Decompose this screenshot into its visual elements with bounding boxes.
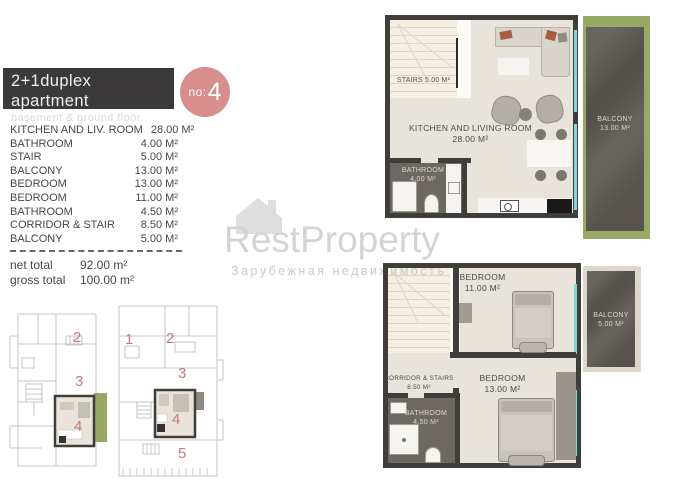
room-value: 5.00 M² [133, 151, 178, 165]
room-value: 13.00 M² [127, 165, 178, 179]
corridor-label: CORRIDOR & STAIRS 8.50 M² [383, 374, 455, 392]
room-row: BALCONY13.00 M² [10, 165, 178, 179]
dining-chair [556, 129, 567, 140]
site-right-unit-1: 1 [125, 332, 133, 347]
net-total-value: 92.00 m² [80, 258, 127, 272]
window-bedroom-small [574, 284, 577, 354]
room-row: CORRIDOR & STAIR8.50 M² [10, 219, 178, 233]
cooktop-icon [547, 199, 572, 213]
corridor-name: CORRIDOR & STAIRS [383, 374, 455, 383]
room-value: 13.00 M² [127, 178, 178, 192]
room-label: CORRIDOR & STAIR [10, 219, 115, 233]
unit-number-badge: no: 4 [180, 67, 230, 117]
net-total-row: net total92.00 m² [10, 258, 178, 272]
ground-stairs: STAIRS 5.00 M² [390, 20, 457, 98]
shower-icon [389, 424, 419, 455]
dining-chair [556, 170, 567, 181]
dining-table [527, 140, 571, 167]
basement-balcony-area: 5.00 M² [587, 320, 635, 329]
bedroom-divider-wall [450, 352, 576, 358]
room-label: BALCONY [10, 233, 63, 247]
window-living-top [574, 30, 577, 112]
room-value: 11.00 M² [127, 192, 178, 206]
net-total-label: net total [10, 258, 80, 272]
site-left-unit-3: 3 [75, 374, 83, 389]
toilet-icon [424, 194, 439, 213]
floorplan-sheet: 2+1duplex apartment basement & ground fl… [0, 0, 679, 480]
dining-chair [535, 170, 546, 181]
room-label: BATHROOM [10, 206, 73, 220]
window-living-bottom [574, 124, 577, 210]
site-plan-right [113, 302, 225, 480]
gross-total-label: gross total [10, 273, 80, 287]
site-right-unit-3: 3 [178, 366, 186, 381]
badge-prefix: no: [188, 85, 206, 99]
wardrobe [556, 372, 576, 460]
room-label: BATHROOM [10, 138, 73, 152]
dining-chair [535, 129, 546, 140]
ground-balcony-label: BALCONY [586, 115, 644, 124]
site-right-unit-4: 4 [172, 412, 180, 427]
ground-bathroom-name: BATHROOM [392, 166, 454, 175]
room-row: STAIR5.00 M² [10, 151, 178, 165]
stair-railing [456, 38, 458, 88]
room-area-list: KITCHEN AND LIV. ROOM28.00 M² BATHROOM4.… [10, 124, 178, 287]
site-right-unit-5: 5 [178, 446, 186, 461]
bedroom-small-name: BEDROOM [425, 272, 540, 283]
room-label: BALCONY [10, 165, 63, 179]
room-row: BALCONY5.00 M² [10, 233, 178, 247]
bed-small [512, 291, 554, 349]
room-row: KITCHEN AND LIV. ROOM28.00 M² [10, 124, 178, 138]
site-plan-left [8, 306, 110, 478]
room-label: BEDROOM [10, 178, 67, 192]
gross-total-value: 100.00 m² [80, 273, 134, 287]
ground-balcony-area: 13.00 M² [586, 124, 644, 133]
page-title: 2+1duplex apartment [11, 71, 174, 111]
site-right-balcony-nub [195, 392, 204, 410]
watermark-house-icon [228, 192, 292, 236]
room-value: 4.00 M² [133, 138, 178, 152]
dresser [459, 303, 472, 323]
bedroom-large-name: BEDROOM [450, 373, 555, 384]
bedroom-large-label: BEDROOM 13.00 M² [450, 373, 555, 395]
sofa-pillow [557, 32, 567, 42]
ground-stairs-label: STAIRS 5.00 M² [390, 77, 457, 84]
room-value: 28.00 M² [143, 124, 194, 138]
room-row: BEDROOM13.00 M² [10, 178, 178, 192]
room-label: BEDROOM [10, 192, 67, 206]
site-left-garden [94, 393, 107, 442]
watermark-brand: RestProperty [224, 221, 440, 259]
basement-bathroom-name: BATHROOM [398, 409, 454, 418]
site-right-unit-2: 2 [166, 331, 174, 346]
basement-bathroom-wall-right [455, 393, 460, 463]
kitchen-living-name: KITCHEN AND LIVING ROOM [398, 123, 543, 134]
room-label: STAIR [10, 151, 42, 165]
bed-large [498, 398, 555, 462]
site-left-unit-2: 2 [73, 330, 81, 345]
ground-balcony: BALCONY 13.00 M² [586, 27, 644, 231]
washbasin-counter [446, 164, 461, 213]
stair-landing [457, 20, 471, 98]
page-subtitle: basement & ground floor [11, 111, 174, 125]
room-row: BATHROOM4.50 M² [10, 206, 178, 220]
bedroom-large-area: 13.00 M² [450, 384, 555, 395]
gross-total-row: gross total100.00 m² [10, 273, 178, 287]
basement-balcony: BALCONY 5.00 M² [587, 271, 635, 367]
plan-header: 2+1duplex apartment basement & ground fl… [3, 68, 174, 109]
bathtub-icon [392, 181, 417, 212]
oven-icon [500, 200, 519, 212]
coffee-table [498, 58, 529, 75]
room-row: BATHROOM4.00 M² [10, 138, 178, 152]
kitchen-living-area: 28.00 M² [398, 134, 543, 145]
badge-number: 4 [208, 78, 222, 107]
kitchen-living-label: KITCHEN AND LIVING ROOM 28.00 M² [398, 123, 543, 145]
side-table [519, 108, 532, 121]
toilet-icon [425, 447, 441, 463]
room-value: 8.50 M² [133, 219, 178, 233]
bathroom-wall-right [462, 158, 467, 213]
totals-divider [10, 250, 182, 252]
room-value: 4.50 M² [133, 206, 178, 220]
room-value: 5.00 M² [133, 233, 178, 247]
basement-balcony-label: BALCONY [587, 311, 635, 320]
room-label: KITCHEN AND LIV. ROOM [10, 124, 143, 138]
corridor-area: 8.50 M² [383, 383, 455, 392]
site-left-unit-4: 4 [74, 419, 82, 434]
room-row: BEDROOM11.00 M² [10, 192, 178, 206]
